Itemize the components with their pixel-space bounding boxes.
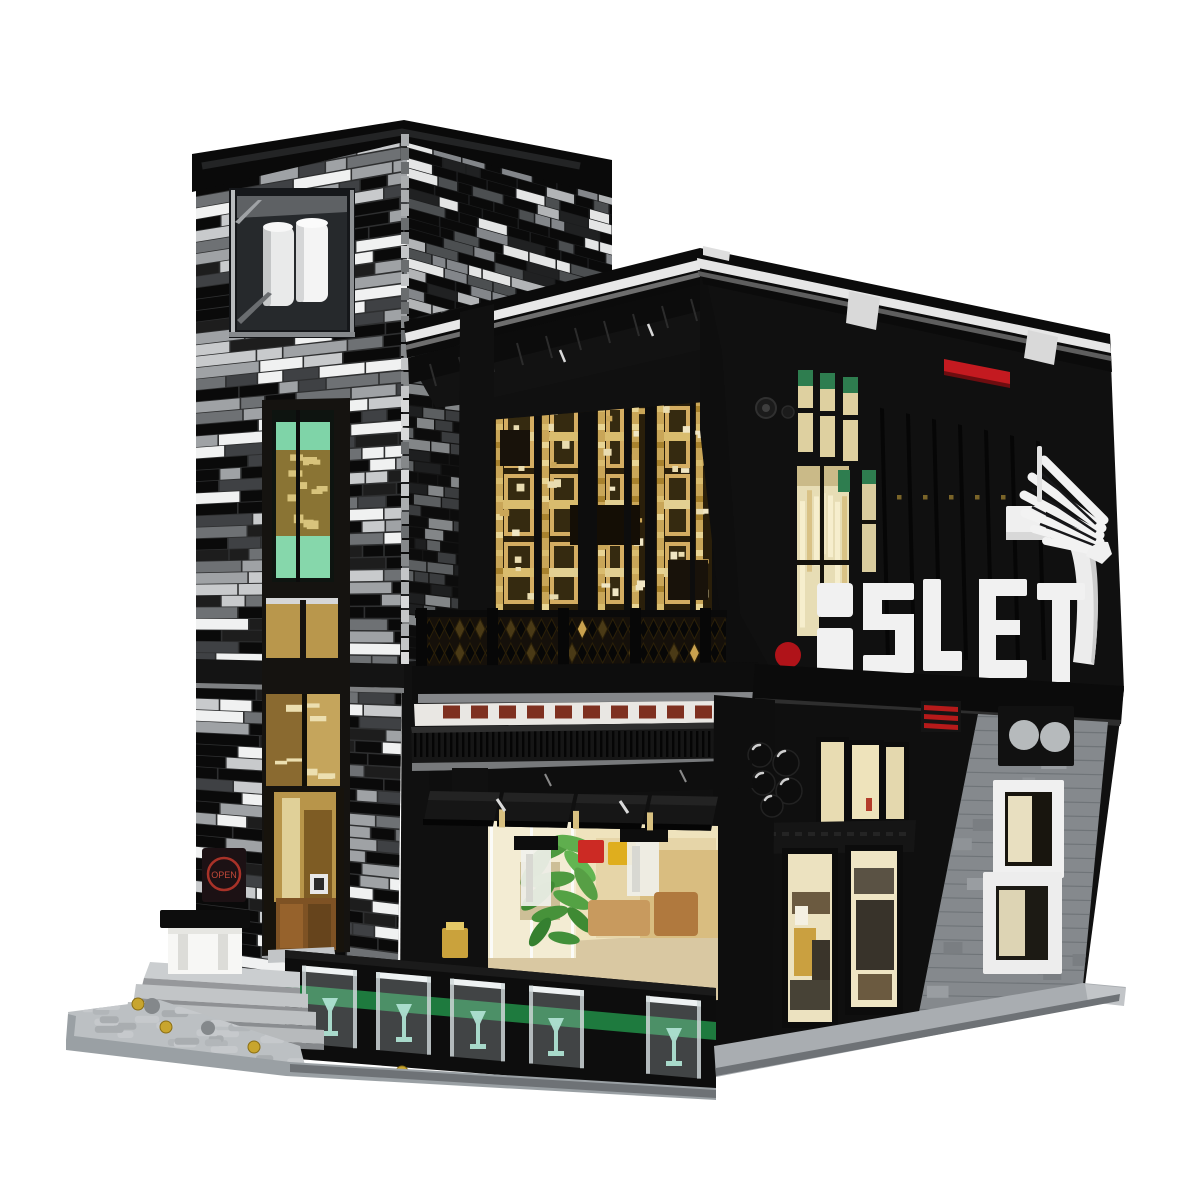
svg-text:OPEN: OPEN (211, 870, 237, 880)
